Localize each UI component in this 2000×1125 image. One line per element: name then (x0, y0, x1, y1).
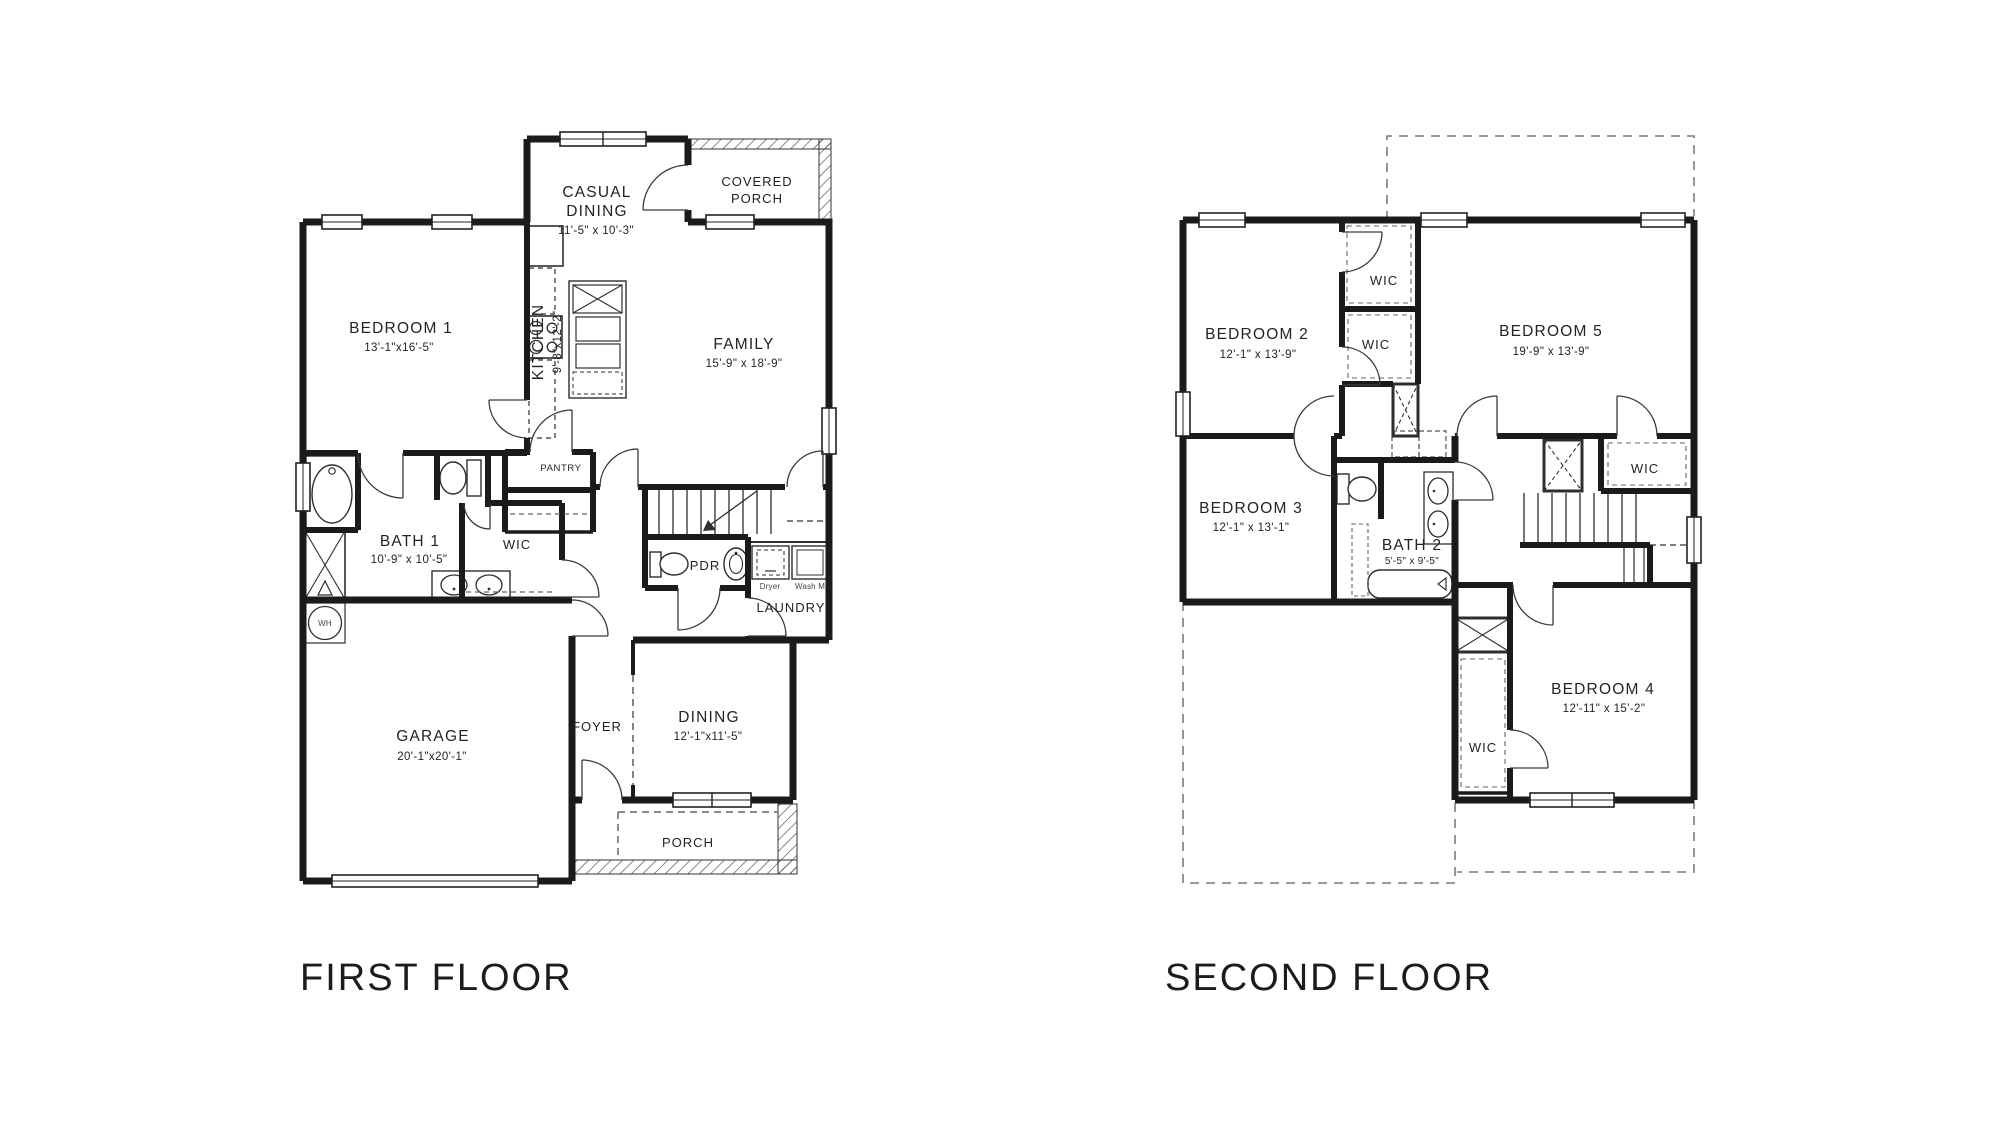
appliance-label-washer: Wash M (795, 582, 825, 591)
room-label-bedroom-2: BEDROOM 2 (1205, 326, 1309, 343)
room-label-wic: WIC (503, 537, 531, 552)
window (822, 408, 836, 454)
pdr-toilet-icon (650, 552, 688, 577)
linen-shelves (1352, 524, 1368, 596)
room-label-casual-dining-2: DINING (566, 203, 627, 220)
room-label-pdr: PDR (690, 558, 720, 573)
room-label-bedroom-5: BEDROOM 5 (1499, 323, 1603, 340)
bathtub-icon-2 (1368, 570, 1452, 598)
room-label-wic-top: WIC (1370, 273, 1398, 288)
room-dims-bath-1: 10'-9" x 10'-5" (371, 554, 448, 566)
room-label-covered-porch-2: PORCH (731, 191, 783, 206)
appliance-label-dryer: Dryer (760, 582, 781, 591)
room-label-foyer: FOYER (572, 719, 622, 734)
room-dims-bath-2: 5'-5" x 9'-5" (1385, 556, 1439, 567)
room-label-kitchen: KITCHEN (530, 304, 547, 380)
room-label-bedroom-1: BEDROOM 1 (349, 320, 453, 337)
window (673, 793, 751, 807)
window (296, 463, 310, 511)
room-label-garage: GARAGE (396, 728, 470, 745)
label-water-heater: WH (318, 619, 332, 628)
room-dims-garage: 20'-1"x20'-1" (397, 751, 467, 763)
garage-door (332, 875, 538, 887)
toilet-icon-2 (1337, 474, 1376, 504)
room-label-bedroom-3: BEDROOM 3 (1199, 500, 1303, 517)
floor-plan-page: CASUAL DINING 11'-5" x 10'-3" COVERED PO… (0, 0, 2000, 1125)
window (1421, 213, 1467, 227)
first-floor-plan: CASUAL DINING 11'-5" x 10'-3" COVERED PO… (296, 132, 836, 999)
vanity-sinks-icon (432, 571, 510, 600)
room-dims-bedroom-2: 12'-1" x 13'-9" (1220, 349, 1297, 361)
first-floor-walls (303, 139, 833, 881)
window (1530, 793, 1614, 807)
window (432, 215, 472, 229)
window (1199, 213, 1245, 227)
room-label-casual-dining: CASUAL (562, 184, 631, 201)
kitchen-island-icon (569, 281, 626, 398)
window (560, 132, 646, 146)
room-dims-bedroom-5: 19'-9" x 13'-9" (1513, 346, 1590, 358)
second-floor-title: SECOND FLOOR (1165, 957, 1493, 999)
stairs-up-icon (659, 490, 827, 534)
room-dims-bedroom-1: 13'-1"x16'-5" (364, 342, 434, 354)
room-dims-kitchen: 9'-8"x12'-2" (552, 311, 564, 374)
window (1687, 517, 1701, 563)
bath2-vanity-sinks-icon (1424, 472, 1453, 544)
room-label-bedroom-4: BEDROOM 4 (1551, 681, 1655, 698)
room-label-bath-2: BATH 2 (1382, 537, 1442, 554)
room-label-family: FAMILY (713, 336, 774, 353)
room-dims-bedroom-3: 12'-1" x 13'-1" (1213, 522, 1290, 534)
room-label-bath-1: BATH 1 (380, 533, 440, 550)
room-dims-family: 15'-9" x 18'-9" (706, 358, 783, 370)
room-dims-casual-dining: 11'-5" x 10'-3" (558, 225, 634, 237)
shower-icon (305, 531, 345, 599)
window (322, 215, 362, 229)
toilet-icon (440, 460, 481, 496)
first-floor-windows (296, 132, 836, 887)
pedestal-sink-icon (724, 548, 748, 580)
room-dims-dining: 12'-1"x11'-5" (674, 731, 743, 743)
dryer-icon (752, 546, 789, 579)
room-label-wic-right: WIC (1631, 461, 1659, 476)
floor-plan-drawing: CASUAL DINING 11'-5" x 10'-3" COVERED PO… (0, 0, 2000, 1125)
stairs-down-icon (1524, 493, 1690, 583)
window (1176, 392, 1190, 436)
second-floor-plan: BEDROOM 2 12'-1" x 13'-9" WIC WIC BEDROO… (1165, 136, 1701, 999)
window (706, 215, 754, 229)
room-label-wic-bottom: WIC (1469, 740, 1497, 755)
room-label-pantry: PANTRY (540, 463, 581, 474)
washer-icon (792, 546, 828, 579)
room-label-dining: DINING (678, 709, 739, 726)
window (1641, 213, 1685, 227)
room-label-porch: PORCH (662, 835, 714, 850)
room-label-covered-porch: COVERED (721, 174, 792, 189)
room-label-wic-mid: WIC (1362, 337, 1390, 352)
first-floor-title: FIRST FLOOR (300, 957, 573, 999)
room-dims-bedroom-4: 12'-11" x 15'-2" (1563, 703, 1646, 715)
bathtub-icon (306, 456, 358, 530)
room-label-laundry: LAUNDRY (757, 600, 826, 615)
